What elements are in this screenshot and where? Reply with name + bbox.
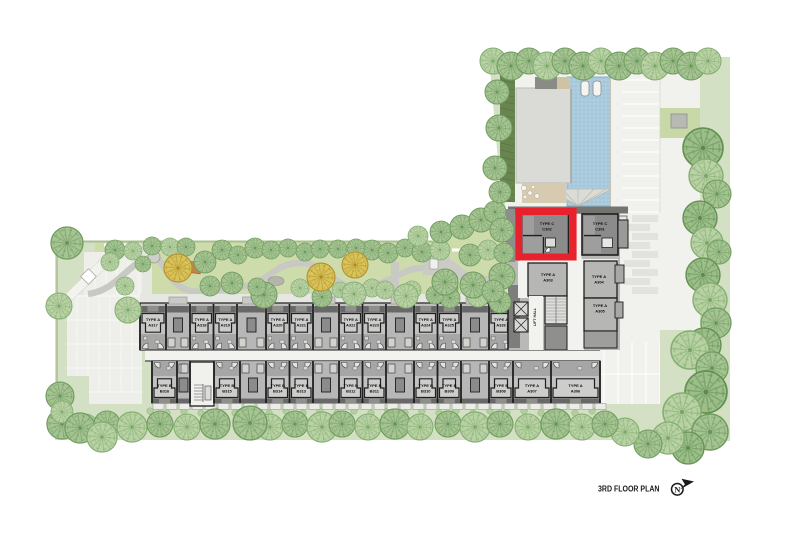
- svg-text:B309: B309: [444, 389, 454, 394]
- svg-text:TYPE A: TYPE A: [367, 317, 381, 322]
- svg-text:A321: A321: [296, 323, 306, 328]
- svg-text:B313: B313: [296, 389, 306, 394]
- svg-text:TYPE B: TYPE B: [419, 383, 434, 388]
- svg-text:TYPE A: TYPE A: [344, 317, 358, 322]
- svg-text:TYPE A: TYPE A: [195, 317, 209, 322]
- svg-text:B315: B315: [222, 389, 232, 394]
- svg-text:TYPE A: TYPE A: [146, 317, 160, 322]
- svg-text:TYPE B: TYPE B: [344, 383, 359, 388]
- svg-text:TYPE B: TYPE B: [157, 383, 172, 388]
- svg-text:A323: A323: [369, 323, 379, 328]
- svg-text:TYPE C: TYPE C: [593, 221, 608, 226]
- svg-text:A325: A325: [444, 323, 454, 328]
- svg-text:C301: C301: [595, 227, 605, 232]
- svg-text:TYPE A: TYPE A: [494, 317, 508, 322]
- svg-text:TYPE A: TYPE A: [271, 317, 285, 322]
- svg-text:TYPE A: TYPE A: [419, 317, 433, 322]
- svg-text:A326: A326: [496, 323, 506, 328]
- svg-text:A306: A306: [571, 389, 581, 394]
- svg-text:TYPE A: TYPE A: [541, 272, 555, 277]
- svg-text:A317: A317: [148, 323, 158, 328]
- svg-text:C302: C302: [542, 227, 552, 232]
- svg-text:LIFT HALL: LIFT HALL: [533, 307, 537, 326]
- svg-text:A324: A324: [421, 323, 431, 328]
- svg-text:3RD FLOOR PLAN: 3RD FLOOR PLAN: [598, 484, 660, 494]
- svg-text:TYPE A: TYPE A: [593, 303, 607, 308]
- svg-text:TYPE C: TYPE C: [540, 221, 555, 226]
- svg-text:TYPE B: TYPE B: [442, 383, 457, 388]
- svg-text:A318: A318: [197, 323, 207, 328]
- svg-text:B310: B310: [421, 389, 431, 394]
- svg-text:N: N: [674, 485, 681, 495]
- svg-text:TYPE B: TYPE B: [220, 383, 235, 388]
- svg-text:TYPE A: TYPE A: [442, 317, 456, 322]
- svg-text:TYPE B: TYPE B: [494, 383, 509, 388]
- svg-text:A303: A303: [543, 278, 553, 283]
- svg-text:B314: B314: [273, 389, 283, 394]
- svg-text:A322: A322: [346, 323, 356, 328]
- svg-text:TYPE A: TYPE A: [525, 383, 539, 388]
- svg-text:TYPE A: TYPE A: [218, 317, 232, 322]
- svg-text:B312: B312: [346, 389, 356, 394]
- svg-text:A305: A305: [595, 309, 605, 314]
- svg-text:TYPE A: TYPE A: [568, 383, 582, 388]
- svg-text:TYPE A: TYPE A: [592, 274, 606, 279]
- svg-text:A319: A319: [220, 323, 230, 328]
- svg-text:TYPE B: TYPE B: [367, 383, 382, 388]
- svg-text:A304: A304: [594, 280, 604, 285]
- svg-text:TYPE B: TYPE B: [271, 383, 286, 388]
- svg-text:TYPE B: TYPE B: [294, 383, 309, 388]
- svg-text:B311: B311: [370, 389, 380, 394]
- svg-text:B316: B316: [160, 389, 170, 394]
- svg-text:B308: B308: [496, 389, 506, 394]
- svg-text:A320: A320: [273, 323, 283, 328]
- svg-text:TYPE A: TYPE A: [294, 317, 308, 322]
- svg-text:A307: A307: [527, 389, 537, 394]
